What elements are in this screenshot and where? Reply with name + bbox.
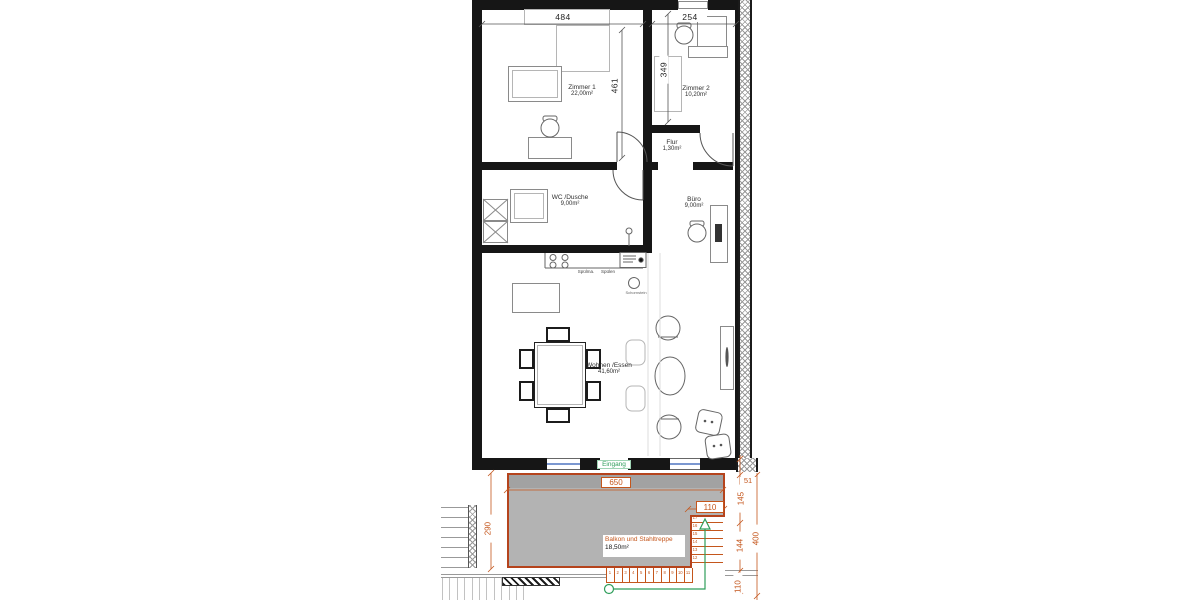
retaining-wall-line [479, 578, 480, 600]
dim-650: 650 [601, 477, 631, 488]
retaining-wall-line [494, 578, 495, 600]
window-bottom-1 [547, 458, 580, 470]
window-top-zimmer2 [678, 1, 708, 9]
existing-wall-hatch-left [468, 505, 477, 568]
dim-144: 144 [735, 532, 744, 560]
retaining-wall-line [442, 578, 443, 600]
room-label-wohnen: Wohnen /Essen 41,60m² [577, 362, 641, 376]
armchair-bottom [657, 415, 681, 439]
stair-tread-lower [692, 568, 693, 583]
retaining-wall-line [464, 578, 465, 600]
room-area: 1,30m² [647, 146, 697, 153]
room-label-zimmer2: Zimmer 2 10,20m² [664, 85, 728, 99]
room-label-wc: WC /Dusche 9,00m² [538, 194, 602, 208]
room-name: WC /Dusche [538, 194, 602, 201]
cooktop-burner [562, 262, 568, 268]
sideboard-living [512, 283, 560, 313]
dining-chair-left-2 [519, 381, 534, 401]
side-chair-2 [626, 386, 645, 411]
dining-chair-bottom [546, 408, 570, 423]
exterior-step-line [441, 507, 468, 508]
washing-machine-2 [483, 221, 508, 243]
floorplan-canvas: Zimmer 1 22,00m² Zimmer 2 10,20m² Flur 1… [0, 0, 1200, 600]
exterior-step-line [441, 537, 468, 538]
stair-number: 7 [653, 571, 661, 575]
stair-number: 9 [669, 571, 677, 575]
washing-machine-1 [483, 199, 508, 221]
exterior-step-line [441, 557, 468, 558]
stair-number: 2 [614, 571, 622, 575]
wall-bottom-4 [700, 458, 736, 470]
dim-254: 254 [673, 13, 707, 22]
retaining-wall-line [486, 578, 487, 600]
room-area: 22,00m² [550, 91, 614, 98]
balcony-name: Balkon und Stahltreppe [605, 536, 683, 544]
exterior-step-line [441, 527, 468, 528]
room-name: Zimmer 1 [550, 84, 614, 91]
balcony-label-box: Balkon und Stahltreppe 18,50m² [603, 535, 685, 557]
room-name: Flur [647, 139, 697, 146]
exterior-step-line [441, 517, 468, 518]
pouf-2 [705, 433, 732, 459]
cooktop-burner [562, 255, 568, 261]
chimney-circle [629, 278, 640, 289]
room-area: 9,00m² [662, 203, 726, 210]
wall-bottom-3 [628, 458, 670, 470]
chair-back-buero [690, 221, 704, 226]
wall-flur-stub [652, 162, 658, 170]
wall-top-right [708, 0, 736, 10]
stair-number: 6 [645, 571, 653, 575]
retaining-wall-line [457, 578, 458, 600]
wall-flur-buero [693, 162, 733, 170]
wc-sink [626, 228, 632, 234]
wall-zimmer1-wc [482, 162, 617, 170]
stair-number: 16 [691, 524, 699, 528]
retaining-wall-line [472, 578, 473, 600]
stair-number: 12 [691, 556, 699, 560]
dim-461: 461 [610, 72, 619, 100]
fridge [620, 253, 646, 268]
monitor-buero [715, 224, 722, 242]
sink-label: Spülen [597, 269, 619, 274]
dim-145: 145 [736, 485, 745, 513]
pouf-1 [695, 409, 723, 436]
dim-400: 400 [751, 525, 760, 553]
stair-number: 13 [691, 548, 699, 552]
room-label-buero: Büro 9,00m² [662, 196, 726, 210]
balcony-area: 18,50m² [605, 544, 683, 552]
stair-number: 11 [684, 571, 692, 575]
door-arc-wc [613, 170, 643, 200]
desk-chair-buero [688, 224, 706, 242]
existing-building-hatch-corner [736, 458, 758, 472]
existing-wall-band [502, 577, 560, 586]
wall-zimmer2-flur [643, 125, 700, 133]
room-name: Zimmer 2 [664, 85, 728, 92]
retaining-wall-line [449, 578, 450, 600]
room-label-zimmer1: Zimmer 1 22,00m² [550, 84, 614, 98]
cooktop-burner [550, 255, 556, 261]
dining-chair-left-1 [519, 349, 534, 369]
room-area: 10,20m² [664, 92, 728, 99]
chimney-label: Schornstein [621, 290, 651, 295]
stair-number: 14 [691, 540, 699, 544]
dining-chair-right-2 [586, 381, 601, 401]
dim-290: 290 [483, 515, 492, 543]
window-bottom-2 [670, 458, 700, 470]
exterior-step-line [441, 547, 468, 548]
entrance-label: Eingang [597, 460, 631, 469]
armchair-top [656, 316, 680, 340]
stair-tread-upper [692, 562, 723, 563]
exterior-step-line [441, 567, 468, 568]
stair-number: 8 [661, 571, 669, 575]
desk-chair-zimmer2 [675, 26, 693, 44]
dim-110-lower: 110 [733, 573, 742, 600]
desk-zimmer1 [528, 137, 572, 159]
stair-number: 4 [629, 571, 637, 575]
stair-number: 5 [637, 571, 645, 575]
dishwasher-label: Spülma. [574, 269, 598, 274]
desk-chair-zimmer1 [541, 119, 559, 137]
dim-349: 349 [659, 56, 668, 84]
room-label-flur: Flur 1,30m² [647, 139, 697, 153]
room-name: Wohnen /Essen [577, 362, 641, 369]
stair-start-circle [605, 585, 614, 594]
room-name: Büro [662, 196, 726, 203]
shelf-zimmer2 [688, 46, 728, 58]
sideboard-wall [720, 326, 734, 390]
cooktop-burner [550, 262, 556, 268]
chair-back-zimmer2 [677, 23, 691, 28]
room-area: 41,60m² [577, 369, 641, 376]
stair-number: 15 [691, 532, 699, 536]
wall-bottom-1 [472, 458, 547, 470]
closet-zimmer1 [556, 25, 610, 72]
chair-back-zimmer1 [543, 116, 557, 121]
wall-left [472, 0, 482, 470]
existing-building-hatch-right [738, 0, 752, 470]
room-area: 9,00m² [538, 201, 602, 208]
dim-110: 110 [696, 501, 724, 513]
coffee-table-oval [655, 357, 685, 395]
stair-number: 1 [606, 571, 614, 575]
wall-wc-wohnen [482, 245, 643, 253]
stair-number: 17 [691, 516, 699, 520]
stair-number: 3 [622, 571, 630, 575]
dining-chair-top [546, 327, 570, 342]
dim-484: 484 [546, 13, 580, 22]
stair-number: 10 [676, 571, 684, 575]
fridge-dot [639, 258, 643, 262]
